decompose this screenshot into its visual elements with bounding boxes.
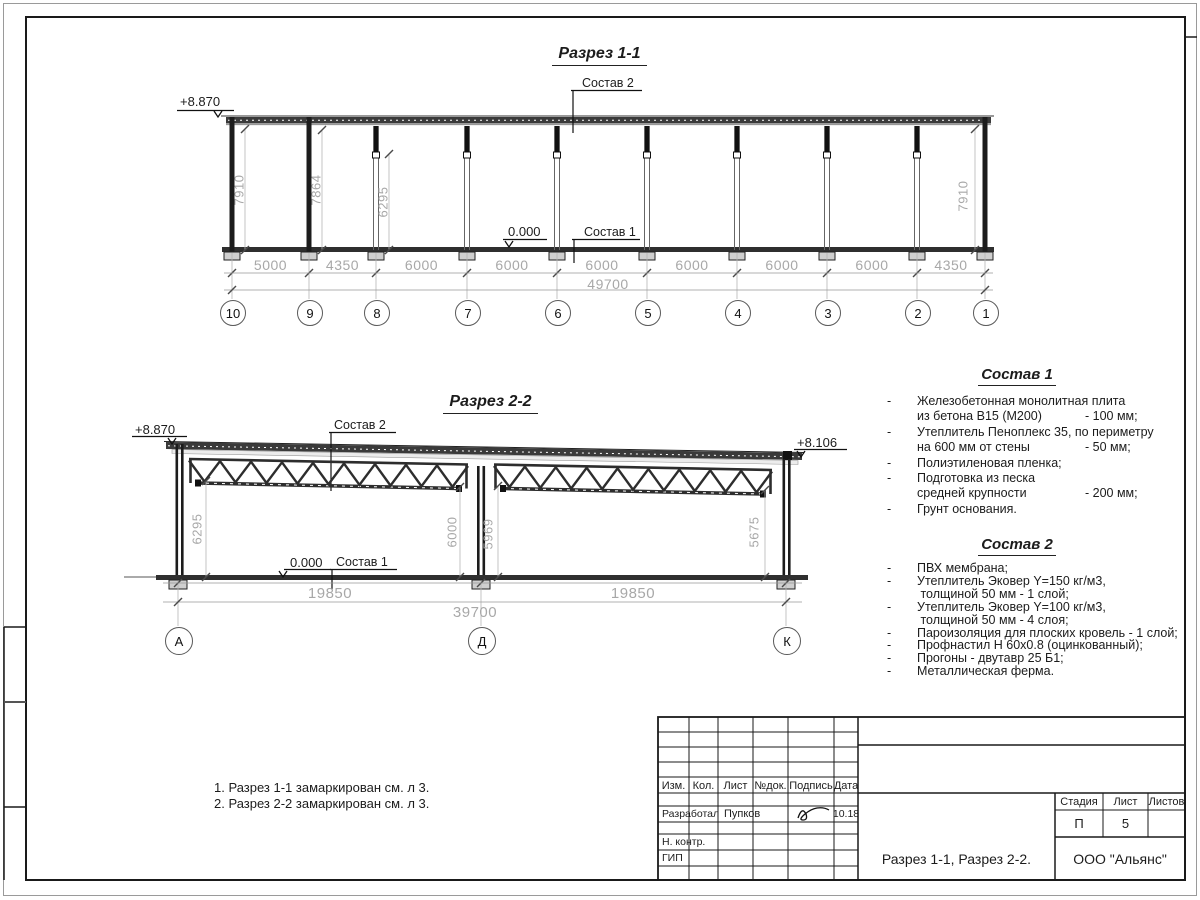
notes: 1. Разрез 1-1 замаркирован см. л 3. 2. Р…: [214, 780, 429, 811]
stamp-date: 10.18: [833, 806, 859, 822]
composition-item: -Полиэтиленовая пленка;: [880, 456, 1154, 471]
stamp-role-developer: Разработал: [659, 806, 721, 822]
floor-slab: [156, 575, 808, 580]
grid-axis-bubble: 1: [973, 300, 999, 326]
stamp-col-data: Дата: [834, 778, 858, 793]
stamp-col-kol: Кол.: [689, 778, 718, 793]
dimension-label: 6000: [487, 257, 537, 273]
stamp-developer-name: Пупков: [721, 806, 784, 822]
left-margin-cells: [4, 627, 26, 880]
grid-axis-bubble: 2: [905, 300, 931, 326]
total-dimension-label: 39700: [440, 604, 510, 621]
stamp-col-podpis: Подпись: [788, 778, 834, 793]
composition-item: на 600 мм от стены- 50 мм;: [880, 440, 1154, 455]
dimension-label: 19850: [603, 585, 663, 602]
note-line: 2. Разрез 2-2 замаркирован см. л 3.: [214, 796, 429, 812]
stamp-sheet-number: 5: [1103, 811, 1148, 836]
composition-item: -Подготовка из песка: [880, 471, 1154, 486]
grid-axis-bubble: А: [165, 627, 193, 655]
section2-callout-floor: Состав 1: [336, 555, 388, 569]
stamp-role-gip: ГИП: [659, 850, 722, 866]
height-dimension-label: 5675: [747, 517, 762, 548]
composition-item: -Утеплитель Пеноплекс 35, по периметру: [880, 425, 1154, 440]
signature: [798, 808, 829, 820]
section1-callout-floor: Состав 1: [584, 225, 636, 239]
composition2-title: Состав 2: [880, 536, 1154, 553]
section1-elevation-top: +8.870: [180, 94, 220, 109]
floor-slab: [222, 247, 994, 252]
composition1-title: Состав 1: [880, 366, 1154, 383]
stamp-stage-header: Стадия: [1055, 794, 1103, 809]
section2-elevation-right: +8.106: [797, 435, 837, 450]
height-dimension-label: 5969: [481, 519, 496, 550]
height-dimension-label: 6295: [376, 187, 391, 218]
stamp-sheet-name: Разрез 1-1, Разрез 2-2.: [860, 839, 1053, 878]
height-dimension-label: 6000: [445, 517, 460, 548]
dimension-label: 19850: [300, 585, 360, 602]
grid-axis-bubble: 3: [815, 300, 841, 326]
stamp-col-izm: Изм.: [658, 778, 689, 793]
height-dimension-label: 7910: [232, 175, 247, 206]
section2-callout-roof: Состав 2: [334, 418, 386, 432]
composition-item: средней крупности- 200 мм;: [880, 486, 1154, 501]
height-dimension-label: 7910: [956, 181, 971, 212]
grid-axis-bubble: 6: [545, 300, 571, 326]
grid-axis-bubble: Д: [468, 627, 496, 655]
dimension-label: 6000: [397, 257, 447, 273]
section1-elevation-zero: 0.000: [508, 224, 541, 239]
composition-item: -Железобетонная монолитная плита: [880, 394, 1154, 409]
section2-elevation-zero: 0.000: [290, 555, 323, 570]
grid-axis-bubble: 4: [725, 300, 751, 326]
stamp-role-ncontr: Н. контр.: [659, 834, 722, 850]
section1-title: Разрез 1-1: [552, 45, 647, 66]
composition2-list: -ПВХ мембрана;-Утеплитель Эковер Y=150 к…: [880, 562, 1154, 678]
roof-end-cap: [783, 451, 792, 460]
stamp-sheet-header: Лист: [1103, 794, 1148, 809]
grid-axis-bubble: 5: [635, 300, 661, 326]
dimension-label: 6000: [757, 257, 807, 273]
grid-axis-bubble: К: [773, 627, 801, 655]
composition-item: -Грунт основания.: [880, 502, 1154, 517]
dimension-label: 6000: [577, 257, 627, 273]
dimension-label: 6000: [847, 257, 897, 273]
composition-item: -Металлическая ферма.: [880, 665, 1154, 678]
dimension-label: 4350: [926, 257, 976, 273]
grid-axis-bubble: 10: [220, 300, 246, 326]
section2-elevation-left: +8.870: [135, 422, 175, 437]
drawing-sheet: { "sheet": { "section1": { "title": "Раз…: [0, 0, 1200, 900]
dimension-label: 5000: [246, 257, 296, 273]
grid-axis-bubble: 8: [364, 300, 390, 326]
note-line: 1. Разрез 1-1 замаркирован см. л 3.: [214, 780, 429, 796]
composition1-list: -Железобетонная монолитная плитаиз бетон…: [880, 394, 1154, 517]
grid-axis-bubble: 7: [455, 300, 481, 326]
composition-item: из бетона В15 (М200)- 100 мм;: [880, 409, 1154, 424]
stamp-col-ndok: №док.: [753, 778, 788, 793]
height-dimension-label: 7864: [309, 175, 324, 206]
section2-title: Разрез 2-2: [443, 393, 538, 414]
dimension-label: 4350: [318, 257, 368, 273]
walls: [176, 444, 791, 578]
height-dimension-label: 6295: [190, 514, 205, 545]
dimension-label: 6000: [667, 257, 717, 273]
section1-callout-roof: Состав 2: [582, 76, 634, 90]
stamp-sheets-header: Листов: [1148, 794, 1185, 809]
zero-level-marker: [503, 240, 547, 248]
grid-axis-bubble: 9: [297, 300, 323, 326]
total-dimension-label: 49700: [578, 276, 638, 292]
stamp-organization: ООО "Альянс": [1056, 839, 1184, 878]
stamp-stage-value: П: [1055, 811, 1103, 836]
callout-leader-roof: [571, 91, 642, 134]
stamp-col-list: Лист: [718, 778, 753, 793]
